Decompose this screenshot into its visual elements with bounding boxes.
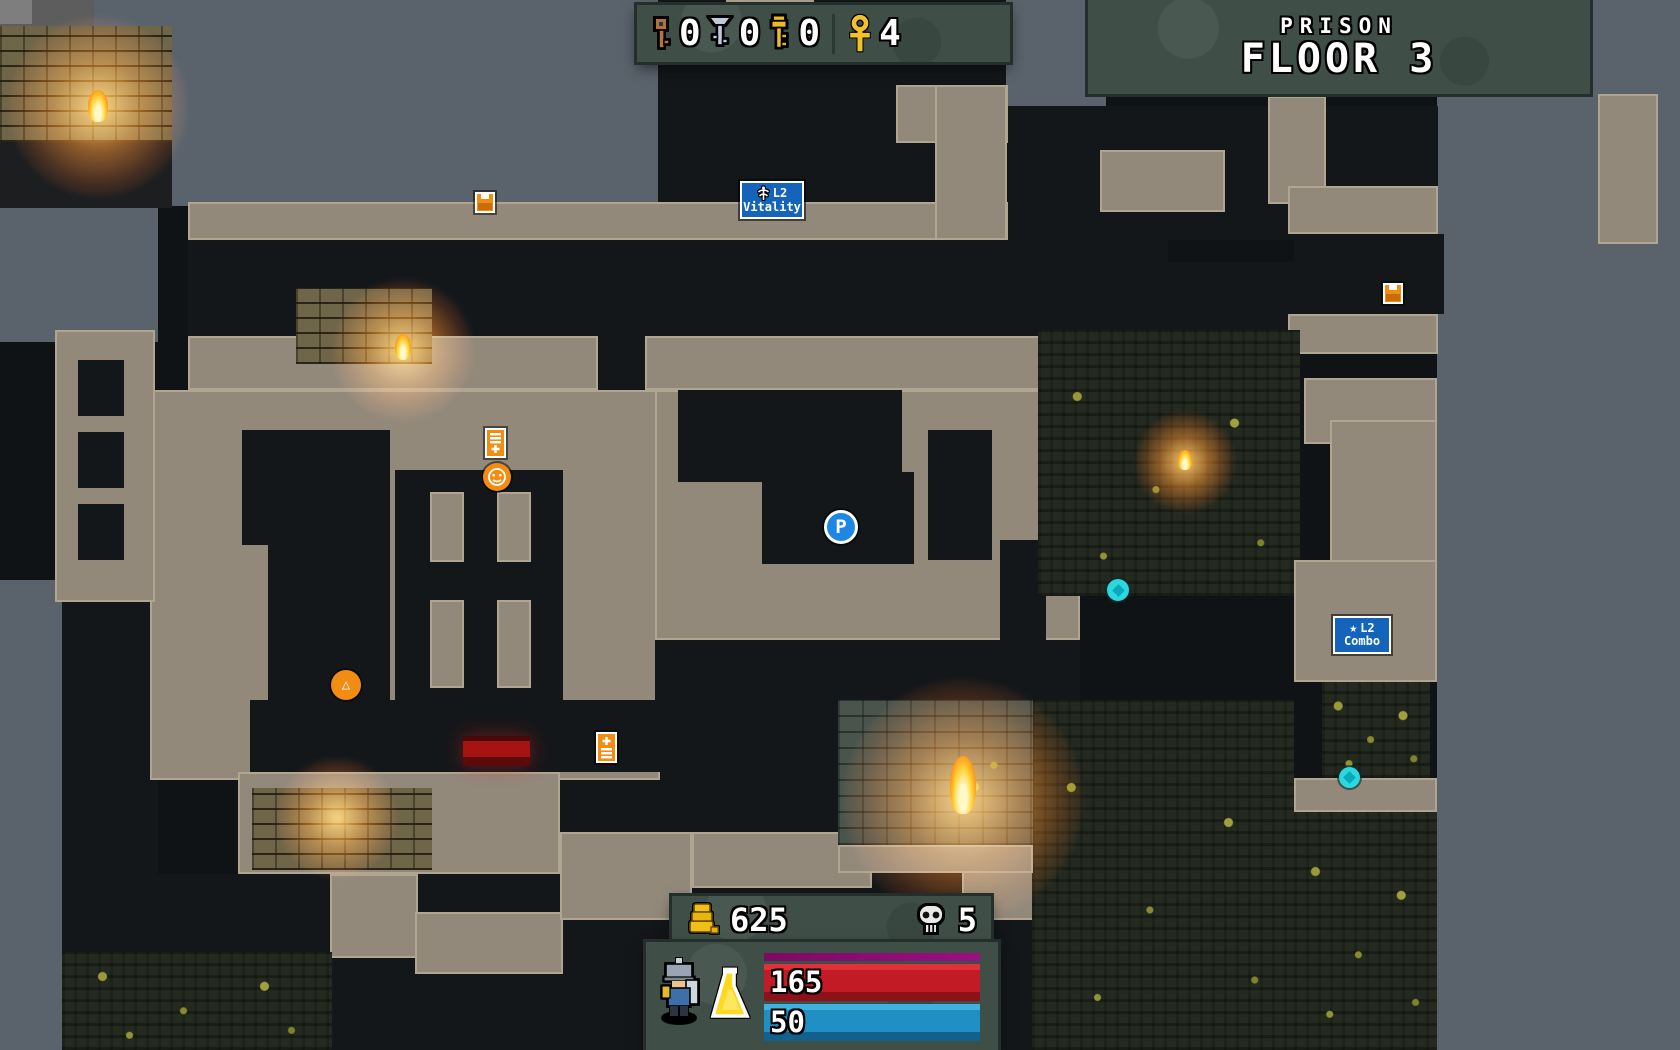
crystal-marker-icon (1107, 579, 1129, 601)
skull-icon (916, 903, 946, 937)
mana-bar: 50 (764, 1004, 980, 1041)
crystal-marker-icon (1339, 767, 1360, 788)
shop-sign-icon (485, 428, 506, 458)
torch-glow (277, 758, 397, 878)
combo-shrine-sign: ★ L2 Combo (1333, 616, 1391, 654)
floor-label: FLOOR 3 (1241, 38, 1438, 80)
map-region-dark (78, 504, 124, 560)
locked-door (463, 736, 530, 766)
map-region-wall (1288, 314, 1438, 354)
brazier-flame-icon (1178, 450, 1192, 470)
ankh-icon (847, 14, 873, 54)
mine-marker-icon: △ (331, 670, 361, 700)
shrine-name: Combo (1344, 635, 1380, 648)
item-chest-icon (1383, 283, 1403, 304)
map-region-wall (1100, 150, 1225, 212)
map-region-wall (935, 85, 1007, 240)
bronze-key-icon (649, 16, 673, 52)
bronze-key-count: 0 (679, 13, 701, 54)
shrine-level: L2 (773, 187, 787, 200)
keys-hud-panel: 0 0 0 4 (637, 5, 1010, 62)
floor-panel: PRISON FLOOR 3 (1088, 0, 1590, 94)
map-region-fog (0, 580, 62, 1050)
map-region-wall (1288, 186, 1438, 234)
caduceus-icon (757, 186, 770, 201)
item-chest-icon (475, 192, 495, 213)
map-region-wall (330, 874, 418, 958)
status-bars-panel: 165 50 (646, 942, 998, 1050)
ankh-count: 4 (879, 13, 901, 54)
map-viewport[interactable]: L2 Vitality ★ L2 Combo (0, 0, 1680, 1050)
vendor-face-icon (483, 463, 511, 491)
map-region-dark (78, 432, 124, 488)
health-value: 165 (770, 965, 822, 999)
map-region-wall (497, 492, 531, 562)
map-region-dark (928, 430, 992, 560)
gold-count: 625 (730, 901, 788, 939)
gold-key-count: 0 (798, 13, 820, 54)
map-region-fog (0, 206, 158, 342)
hud-divider (832, 14, 835, 54)
map-region-wall (430, 492, 464, 562)
torch-flame-icon (950, 756, 976, 814)
map-region-g2 (0, 0, 32, 24)
gold-key-icon (766, 14, 792, 54)
map-region-moss (62, 952, 332, 1050)
torch-flame-icon (395, 334, 411, 360)
map-region-dark (1168, 262, 1308, 336)
map-region-fog (1588, 0, 1680, 94)
map-region-wall (415, 912, 563, 974)
map-region-dark (78, 360, 124, 416)
map-region-wall (1294, 778, 1437, 812)
map-region-wall (497, 600, 531, 688)
shrine-name: Vitality (743, 201, 801, 214)
player-letter: P (835, 516, 846, 538)
map-region-wall (1598, 94, 1658, 244)
player-character-sprite (656, 958, 702, 1024)
gold-icon (686, 902, 720, 938)
triangle-glyph: △ (342, 677, 350, 693)
zone-name: PRISON (1280, 14, 1398, 38)
map-region-dark (678, 390, 902, 482)
map-region-wall (430, 600, 464, 688)
torch-flame-icon (88, 90, 108, 122)
silver-key-count: 0 (739, 13, 761, 54)
gold-skull-panel: 625 5 (672, 896, 991, 944)
map-region-dark (62, 602, 158, 874)
mana-value: 50 (770, 1005, 805, 1039)
vitality-shrine-sign: L2 Vitality (740, 181, 804, 219)
map-region-dark (242, 430, 390, 545)
player-marker: P (824, 510, 858, 544)
map-region-dark (1294, 234, 1444, 314)
potion-flask-icon (708, 966, 752, 1024)
skull-count: 5 (958, 901, 977, 939)
map-region-wall (1330, 420, 1437, 570)
xp-bar (764, 953, 980, 961)
shop-sign-icon (596, 732, 617, 763)
map-region-moss (1294, 812, 1437, 1050)
map-region-moss (1322, 682, 1430, 778)
silver-key-icon (707, 15, 733, 53)
map-region-wall (188, 202, 1008, 240)
health-bar: 165 (764, 964, 980, 1001)
